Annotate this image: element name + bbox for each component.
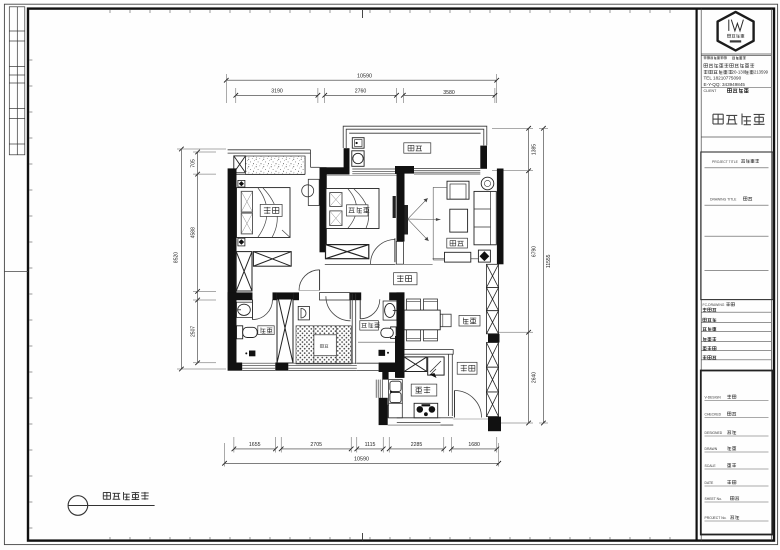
- svg-text:3190: 3190: [271, 88, 283, 94]
- svg-text:SHEET No.: SHEET No.: [705, 497, 723, 501]
- svg-text:SCALE: SCALE: [705, 464, 717, 468]
- svg-text:DATE: DATE: [705, 481, 715, 485]
- svg-text:20-130: 20-130: [732, 70, 746, 75]
- svg-text:10590: 10590: [357, 74, 372, 80]
- svg-text:V-DESIGN: V-DESIGN: [705, 396, 722, 400]
- svg-text:DESIGNED: DESIGNED: [705, 431, 723, 435]
- svg-text:4588: 4588: [190, 227, 196, 238]
- svg-text:2285: 2285: [411, 442, 423, 448]
- svg-text:2507: 2507: [190, 326, 196, 337]
- svg-text:2705: 2705: [310, 442, 322, 448]
- svg-text:1655: 1655: [249, 442, 261, 448]
- svg-text:CLIENT: CLIENT: [704, 89, 718, 93]
- svg-text:8520: 8520: [174, 252, 180, 263]
- svg-text:FC-DRAWING: FC-DRAWING: [703, 303, 725, 307]
- svg-text:TEL 18210775090: TEL 18210775090: [704, 76, 742, 81]
- svg-text:3580: 3580: [443, 90, 455, 96]
- svg-text:PROJECT No.: PROJECT No.: [705, 516, 727, 520]
- svg-text:DRAWN: DRAWN: [705, 447, 718, 451]
- svg-text:2760: 2760: [355, 88, 367, 94]
- svg-text:705: 705: [190, 159, 196, 168]
- svg-text:1385: 1385: [531, 144, 537, 155]
- svg-text:6790: 6790: [531, 246, 537, 257]
- svg-text:11555: 11555: [546, 254, 552, 268]
- svg-text:10590: 10590: [354, 457, 369, 463]
- svg-text:CHECKED: CHECKED: [705, 413, 722, 417]
- svg-text:E-Y-QQ: 343949845: E-Y-QQ: 343949845: [704, 82, 746, 87]
- svg-text:1115: 1115: [365, 442, 376, 448]
- svg-text:1680: 1680: [468, 442, 480, 448]
- svg-text:213599: 213599: [754, 70, 769, 75]
- svg-text:DRAWING TITLE: DRAWING TITLE: [710, 198, 737, 202]
- svg-text:2640: 2640: [531, 372, 537, 383]
- svg-text:PROJECT TITLE: PROJECT TITLE: [712, 160, 739, 164]
